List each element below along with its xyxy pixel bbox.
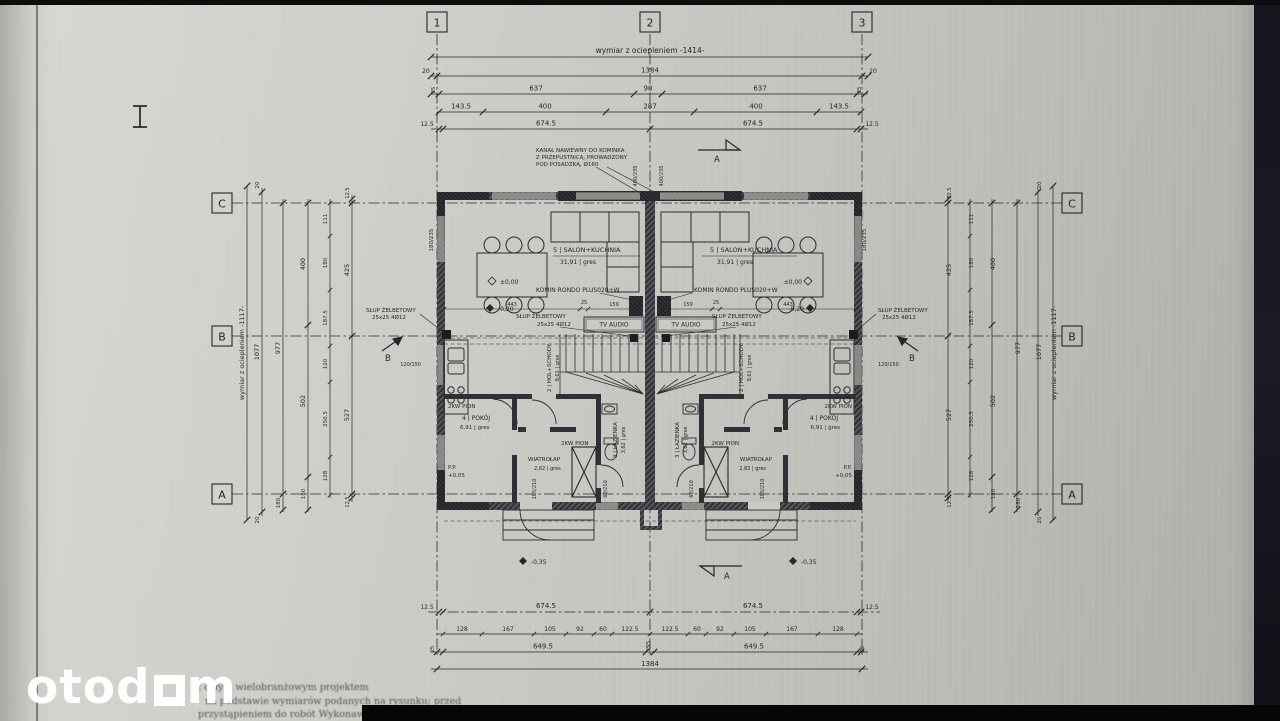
axis-1: 1 <box>434 17 441 30</box>
column-spec-outer-right: 25x25 4Ø12 <box>882 314 916 321</box>
room-bedroom-left-area: 6,91 | gres <box>460 425 490 431</box>
dim: 502 <box>299 395 307 407</box>
dimensions-right: wymiar z ociepleniem -1117- 20 1077 20 9… <box>945 181 1058 523</box>
axis-a-left: A <box>218 489 226 502</box>
room-bedroom-left: 4 | POKÓJ <box>462 415 490 422</box>
dim: 128 <box>969 470 975 481</box>
room-salon-left: 5 | SALON+KUCHNIA <box>553 246 621 254</box>
dim: 25 <box>581 300 587 306</box>
section-a-top: A <box>714 155 720 165</box>
dim: 287 <box>643 103 656 111</box>
dim: 425 <box>945 264 953 276</box>
dim: 1077 <box>1035 344 1043 361</box>
column-label-center-right: SŁUP ŻELBETOWY <box>712 313 762 320</box>
dim: 167 <box>502 626 514 633</box>
dim: 400 <box>989 258 997 270</box>
tv-audio-right: TV AUDIO <box>670 322 701 329</box>
dim: 90 <box>644 85 653 93</box>
otodom-watermark-text-end: m <box>187 664 237 711</box>
dim: 1077 <box>253 344 261 361</box>
column-spec-center-left: 25x25 4Ø12 <box>537 321 571 328</box>
dim: 25 <box>857 87 863 93</box>
dim: 527 <box>343 409 351 421</box>
fireplace-label-right: KOMIN RONDO PLUS020+W <box>694 287 778 294</box>
level-marker <box>519 557 527 565</box>
bottom-black-bar <box>362 705 1280 721</box>
level-m020-left: -0,20 <box>498 306 514 313</box>
room-salon-right-area: 31,91 | gres <box>717 259 753 266</box>
dimensions-bottom: 12.5 674.5 674.5 12.5 128 167 105 92 60 … <box>420 602 880 672</box>
door-size-left: 105/210 <box>532 479 538 500</box>
dim: 12.5 <box>947 496 953 507</box>
window-size-small-left: 120/150 <box>400 362 421 368</box>
room-bedroom-right: 4 | POKÓJ <box>810 415 838 422</box>
column-label-center-left: SŁUP ŻELBETOWY <box>516 313 566 320</box>
column-label-outer-left: SŁUP ŻELBETOWY <box>366 307 416 314</box>
column-spec-center-right: 25x25 4Ø12 <box>722 321 756 328</box>
axis-3: 3 <box>859 17 866 30</box>
window-size-left: 180/235 <box>429 228 435 251</box>
section-a-bottom: A <box>724 572 730 582</box>
axis-2: 2 <box>647 17 654 30</box>
room-hall-left-area: 9,61 | gres <box>555 354 561 381</box>
dim: 12.5 <box>420 121 434 128</box>
level-m020-right: -0,20 <box>788 306 804 313</box>
room-vestibule-left-area: 2,82 | gres <box>534 466 561 472</box>
dim-title-left: wymiar z ociepleniem -1117- <box>238 305 246 400</box>
dim: 637 <box>753 85 766 93</box>
dim: 187.5 <box>969 310 975 326</box>
otodom-watermark-text: otod <box>26 664 151 711</box>
dim: 637 <box>529 85 542 93</box>
window-size-top-left: 400/235 <box>633 166 639 187</box>
dim: 25 <box>430 646 436 652</box>
dim: 649.5 <box>744 643 764 651</box>
shaft-label-right-a: 2KW PION <box>825 404 852 410</box>
dim: 180 <box>276 497 282 508</box>
right-dark-edge <box>1254 0 1280 721</box>
dim: 674.5 <box>743 120 763 128</box>
level-marker <box>789 557 797 565</box>
dim: 674.5 <box>536 120 556 128</box>
column-spec-outer-left: 25x25 4Ø12 <box>372 314 406 321</box>
dimensions-top: wymiar z ociepleniem -1414- 20 1384 20 2… <box>420 46 879 132</box>
dim: 180 <box>301 488 307 499</box>
shaft-label-left-b: 2KW PION <box>561 441 588 447</box>
pp-label-left: P.P. <box>448 465 457 471</box>
dim: 92 <box>716 626 724 633</box>
room-hall-right: 2 | HOL+SCHODY <box>739 343 745 392</box>
kitchen-right <box>830 340 854 414</box>
dim: 12.5 <box>865 121 879 128</box>
dim: 25 <box>431 87 437 93</box>
dim: 400 <box>749 103 762 111</box>
level-zero-right: ±0,00 <box>784 279 803 286</box>
dim: 180 <box>323 257 329 268</box>
level-m035-left: -0,35 <box>531 559 547 566</box>
room-vestibule-left: WIATROŁAP <box>528 457 561 463</box>
tv-audio-left: TV AUDIO <box>598 322 629 329</box>
text-cursor[interactable] <box>133 106 147 127</box>
dim: 12.5 <box>345 496 351 507</box>
dim: 111 <box>323 214 329 225</box>
dim: 20 <box>255 516 261 523</box>
pp-label-right: P.P. <box>844 465 853 471</box>
door-size-right: 105/210 <box>760 479 766 500</box>
dim: 128 <box>832 626 844 633</box>
dim: 122.5 <box>621 626 638 633</box>
axis-a-right: A <box>1068 489 1076 502</box>
dim: 120 <box>323 358 329 369</box>
room-vestibule-right-area: 2,82 | gres <box>739 466 766 472</box>
shaft-label-left-a: 2KW PION <box>448 404 475 410</box>
dim: 120 <box>969 358 975 369</box>
dim: 122.5 <box>661 626 678 633</box>
dim: 128 <box>456 626 468 633</box>
window-size-right: 180/235 <box>862 228 868 251</box>
kitchen-left <box>444 340 468 414</box>
dim: 20 <box>422 68 430 75</box>
level-zero-left: ±0,00 <box>500 279 519 286</box>
dim: 60 <box>693 626 701 633</box>
shaft-label-right-b: 2KW PION <box>712 441 739 447</box>
section-b-left: B <box>385 354 391 364</box>
dim: 1384 <box>641 67 659 75</box>
dim: 180 <box>991 488 997 499</box>
dim: 977 <box>1014 342 1022 354</box>
floor-plan-drawing: 1 2 3 C B A C B A wymiar z ociepleniem -… <box>0 0 1280 721</box>
dim: 977 <box>274 342 282 354</box>
dim: 25 <box>860 646 866 652</box>
window-size-small-right: 120/150 <box>878 362 899 368</box>
dim: 649.5 <box>533 643 553 651</box>
dim: 60 <box>599 626 607 633</box>
dim: 400 <box>538 103 551 111</box>
room-bath-right: 3 | ŁAZIENKA <box>675 422 681 458</box>
dim: 674.5 <box>743 602 763 610</box>
dim: 187.5 <box>323 310 329 326</box>
column-label-outer-right: SŁUP ŻELBETOWY <box>878 307 928 314</box>
dim-title-right: wymiar z ociepleniem -1117- <box>1050 305 1058 400</box>
dim: 425 <box>343 264 351 276</box>
dim: 502 <box>989 395 997 407</box>
pp-level-left: +0,05 <box>448 473 465 479</box>
dim: 20 <box>1037 181 1043 188</box>
dim: 20 <box>1037 516 1043 523</box>
window-size-top-right: 400/235 <box>659 166 665 187</box>
dim-title-top: wymiar z ociepleniem -1414- <box>596 46 705 55</box>
axis-b-left: B <box>218 331 226 344</box>
dim: 92 <box>576 626 584 633</box>
dim: 159 <box>683 302 693 308</box>
top-black-bar <box>0 0 1280 5</box>
dim: 128 <box>323 470 329 481</box>
duct-note-line3: POD POSADZKĄ, Ø160 <box>536 161 599 168</box>
otodom-watermark: otodm <box>26 664 237 711</box>
room-salon-left-area: 31,91 | gres <box>560 259 596 266</box>
axis-c-right: C <box>1068 198 1076 211</box>
window-size-bottom-right: 60/210 <box>689 480 695 498</box>
dim: 167 <box>786 626 798 633</box>
room-bath-left: 3 | ŁAZIENKA <box>613 422 619 458</box>
room-salon-right: 5 | SALON+KUCHNIA <box>710 246 778 254</box>
level-marker <box>804 277 812 285</box>
dim: 250.5 <box>323 411 329 427</box>
pp-level-right: +0,05 <box>835 473 852 479</box>
level-marker <box>488 277 496 285</box>
dim: 1384 <box>641 660 659 668</box>
level-m035-right: -0,35 <box>801 559 817 566</box>
dim: 12.5 <box>947 187 953 198</box>
dim: 400 <box>299 258 307 270</box>
axis-b-right: B <box>1068 331 1076 344</box>
photo-of-floor-plan: 1 2 3 C B A C B A wymiar z ociepleniem -… <box>0 0 1280 721</box>
building-walls <box>437 191 862 540</box>
dim: 12.5 <box>345 187 351 198</box>
otodom-square-icon <box>154 675 185 706</box>
dim: 527 <box>945 409 953 421</box>
fireplace-label-left: KOMIN RONDO PLUS020+W <box>536 287 620 294</box>
dim: 250.5 <box>969 411 975 427</box>
room-bath-left-area: 3,62 | gres <box>621 426 627 453</box>
dim: 12.5 <box>420 604 434 611</box>
dim: 180 <box>1016 497 1022 508</box>
dim: 20 <box>255 181 261 188</box>
room-hall-right-area: 9,61 | gres <box>747 354 753 381</box>
dimensions-left: wymiar z ociepleniem -1117- 20 1077 20 9… <box>238 181 355 523</box>
dim: 25 <box>713 300 719 306</box>
room-hall-left: 2 | HOL+SCHODY <box>547 343 553 392</box>
axis-c-left: C <box>218 198 226 211</box>
dim: 25 <box>646 645 652 651</box>
room-bedroom-right-area: 6,91 | gres <box>811 425 841 431</box>
dim: 105 <box>544 626 556 633</box>
room-bath-right-area: 3,62 | gres <box>683 426 689 453</box>
dim: 111 <box>969 214 975 225</box>
duct-note-line1: KANAŁ NAWIEWNY DO KOMINKA <box>536 148 625 154</box>
room-vestibule-right: WIATROŁAP <box>740 457 773 463</box>
dim: 674.5 <box>536 602 556 610</box>
window-size-bottom-left: 60/210 <box>603 480 609 498</box>
dim: 12.5 <box>865 604 879 611</box>
dim: 180 <box>969 257 975 268</box>
section-b-right: B <box>909 354 915 364</box>
dim: 159 <box>609 302 619 308</box>
dim: 20 <box>869 68 877 75</box>
dim: 143.5 <box>829 103 849 111</box>
dim: 105 <box>744 626 756 633</box>
duct-note-line2: Z PRZEPUSTNICĄ, PROWADZONY <box>536 155 628 161</box>
dim: 143.5 <box>451 103 471 111</box>
